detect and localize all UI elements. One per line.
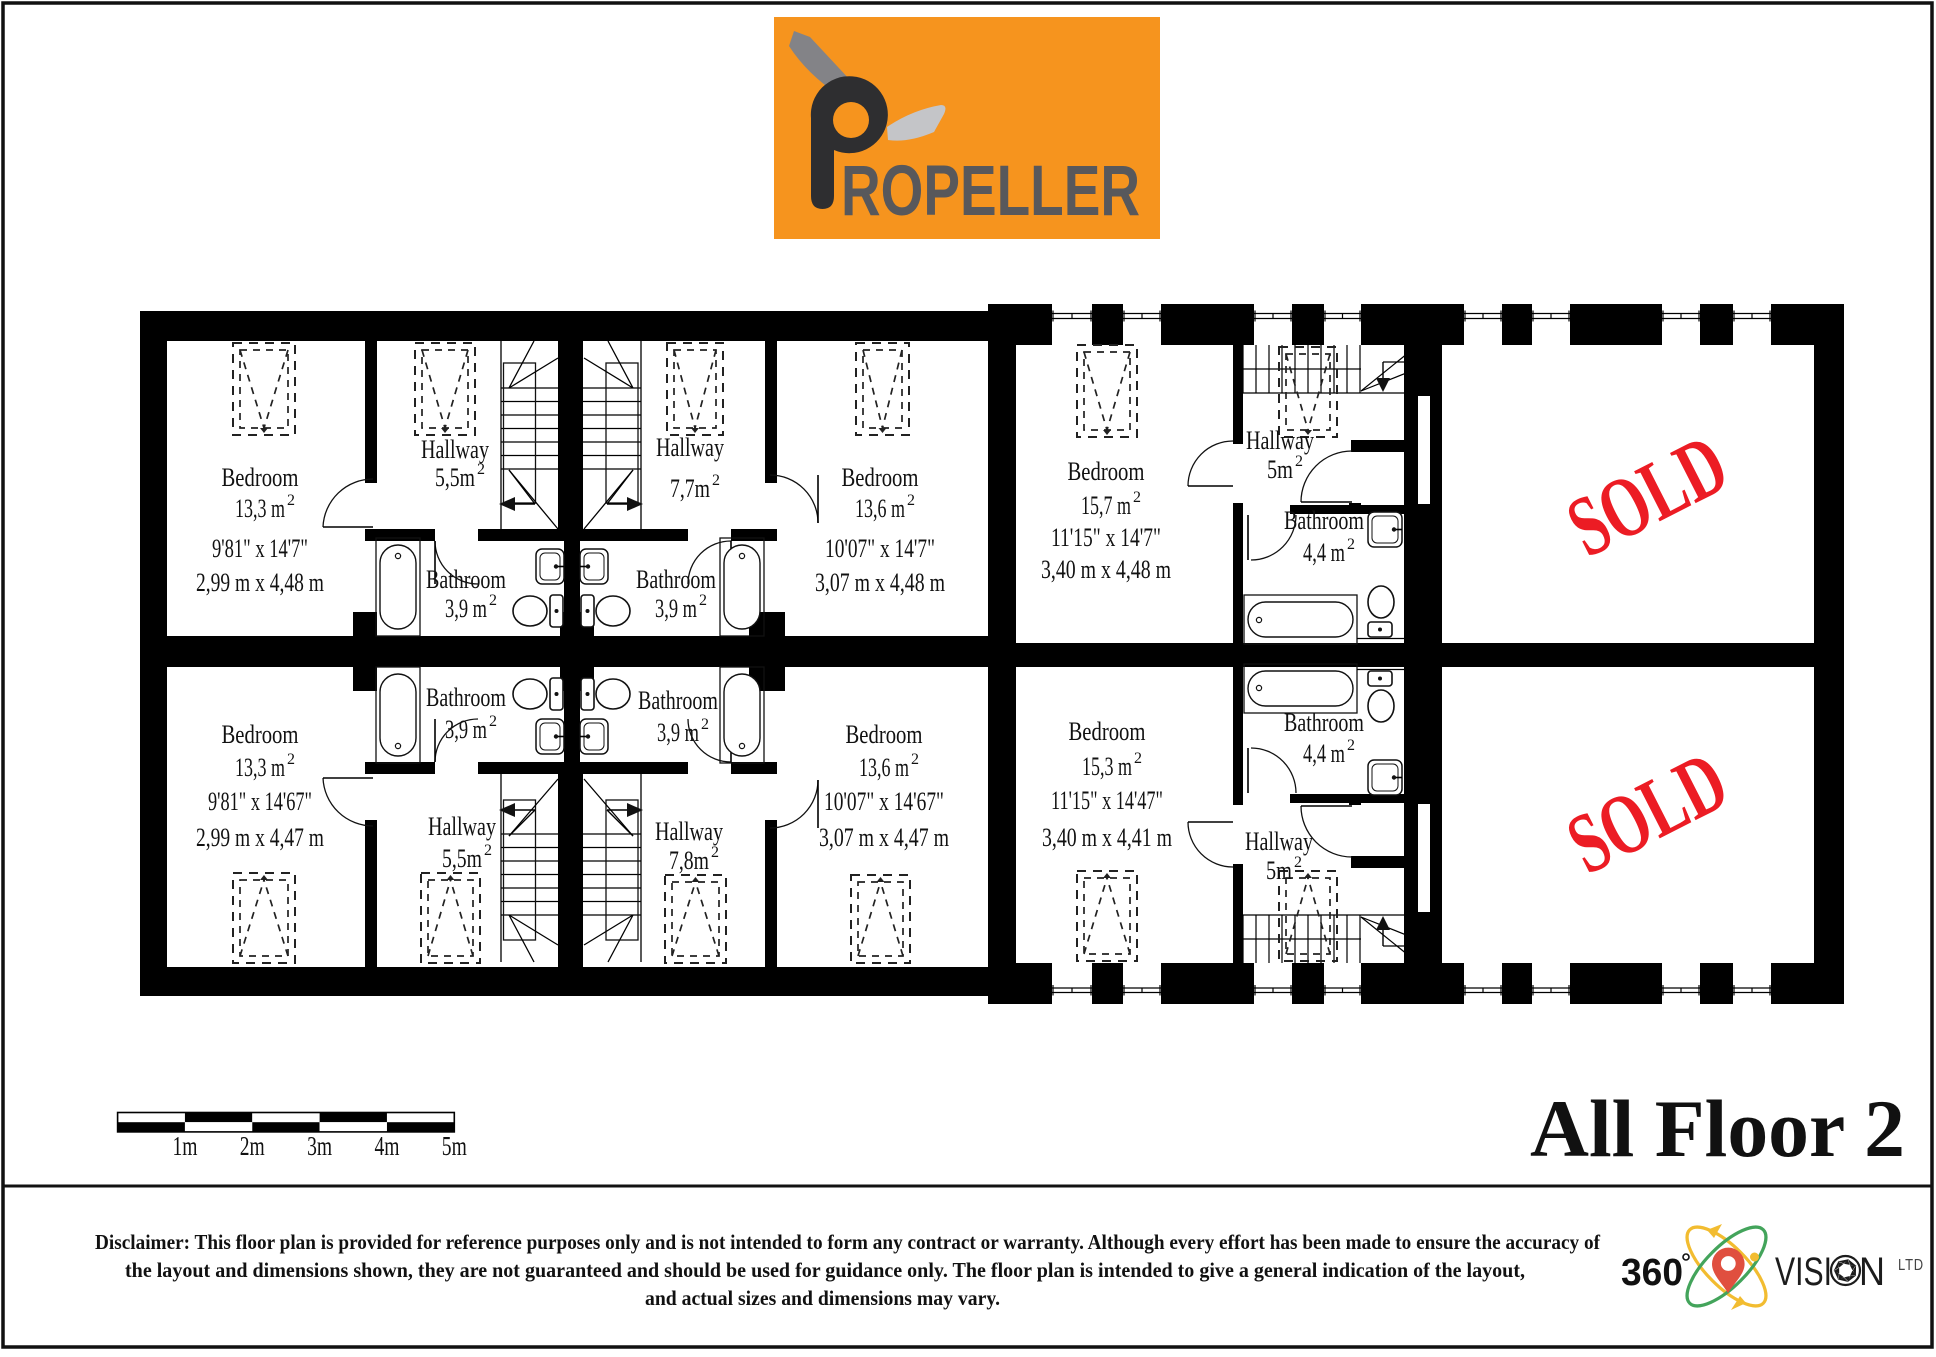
svg-text:2: 2 (477, 461, 485, 478)
svg-text:5,5m: 5,5m (442, 844, 482, 873)
svg-text:3,07 m x 4,47 m: 3,07 m x 4,47 m (819, 823, 949, 852)
svg-text:15,7 m: 15,7 m (1081, 491, 1131, 520)
svg-text:the layout and dimensions show: the layout and dimensions shown, they ar… (125, 1258, 1525, 1282)
svg-text:2: 2 (712, 472, 720, 489)
svg-text:9'81" x 14'7": 9'81" x 14'7" (212, 534, 308, 563)
svg-text:2,99 m x 4,47 m: 2,99 m x 4,47 m (196, 823, 324, 852)
svg-text:Disclaimer: This floor plan is: Disclaimer: This floor plan is provided … (95, 1230, 1601, 1254)
svg-text:1m: 1m (172, 1131, 197, 1161)
svg-text:2: 2 (1295, 453, 1303, 470)
svg-text:7,8m: 7,8m (669, 846, 709, 875)
svg-text:5m: 5m (1267, 455, 1293, 484)
svg-text:Hallway: Hallway (656, 433, 724, 462)
svg-text:3,9 m: 3,9 m (655, 594, 697, 623)
svg-text:13,3 m: 13,3 m (235, 753, 285, 782)
svg-text:5m: 5m (442, 1131, 467, 1161)
svg-text:Bedroom: Bedroom (1069, 717, 1146, 746)
svg-text:Hallway: Hallway (1246, 426, 1314, 455)
svg-text:2: 2 (287, 751, 295, 768)
svg-text:3,9 m: 3,9 m (657, 718, 699, 747)
svg-text:Bedroom: Bedroom (222, 463, 299, 492)
svg-text:2: 2 (711, 844, 719, 861)
svg-text:2: 2 (1347, 536, 1355, 553)
svg-text:3,40 m x 4,48 m: 3,40 m x 4,48 m (1041, 555, 1171, 584)
svg-text:Hallway: Hallway (1245, 827, 1313, 856)
svg-text:10'07" x 14'7": 10'07" x 14'7" (825, 534, 935, 563)
svg-text:2: 2 (1294, 854, 1302, 871)
svg-text:2: 2 (489, 713, 497, 730)
svg-text:N: N (1859, 1250, 1885, 1294)
svg-text:All Floor 2: All Floor 2 (1530, 1083, 1905, 1174)
svg-text:Bedroom: Bedroom (1068, 457, 1145, 486)
svg-text:3,9 m: 3,9 m (445, 715, 487, 744)
svg-text:15,3 m: 15,3 m (1082, 752, 1132, 781)
svg-text:10'07" x 14'67": 10'07" x 14'67" (824, 787, 944, 816)
svg-text:3,9 m: 3,9 m (445, 594, 487, 623)
svg-text:Hallway: Hallway (428, 812, 496, 841)
svg-text:2: 2 (701, 716, 709, 733)
svg-text:Bathroom: Bathroom (1284, 708, 1364, 737)
svg-text:2: 2 (911, 751, 919, 768)
svg-text:2m: 2m (240, 1131, 265, 1161)
svg-text:LTD: LTD (1898, 1257, 1924, 1274)
svg-text:Bathroom: Bathroom (636, 565, 716, 594)
svg-text:360: 360 (1621, 1252, 1683, 1294)
svg-text:11'15" x 14'7": 11'15" x 14'7" (1051, 523, 1161, 552)
svg-text:3,07 m x 4,48 m: 3,07 m x 4,48 m (815, 568, 945, 597)
svg-text:9'81" x 14'67": 9'81" x 14'67" (208, 787, 312, 816)
svg-text:Bathroom: Bathroom (1284, 506, 1364, 535)
svg-text:Bathroom: Bathroom (426, 565, 506, 594)
svg-text:3m: 3m (307, 1131, 332, 1161)
svg-text:Bedroom: Bedroom (222, 720, 299, 749)
svg-text:13,3 m: 13,3 m (235, 494, 285, 523)
svg-text:Bedroom: Bedroom (846, 720, 923, 749)
svg-text:Bedroom: Bedroom (842, 463, 919, 492)
svg-text:2: 2 (699, 592, 707, 609)
svg-text:13,6 m: 13,6 m (859, 753, 909, 782)
svg-text:Bathroom: Bathroom (426, 683, 506, 712)
svg-text:3,40 m x 4,41 m: 3,40 m x 4,41 m (1042, 823, 1172, 852)
svg-text:2: 2 (489, 592, 497, 609)
svg-text:2: 2 (1134, 750, 1142, 767)
svg-text:5m: 5m (1266, 856, 1292, 885)
svg-text:2: 2 (484, 842, 492, 859)
svg-text:13,6 m: 13,6 m (855, 494, 905, 523)
svg-text:ROPELLER: ROPELLER (841, 152, 1140, 231)
svg-text:2: 2 (287, 492, 295, 509)
svg-text:2: 2 (907, 492, 915, 509)
svg-text:4,4 m: 4,4 m (1303, 538, 1345, 567)
svg-text:2: 2 (1133, 489, 1141, 506)
svg-text:and actual sizes and dimension: and actual sizes and dimensions may vary… (645, 1286, 1000, 1310)
svg-text:2: 2 (1347, 737, 1355, 754)
svg-text:4,4 m: 4,4 m (1303, 739, 1345, 768)
svg-text:Bathroom: Bathroom (638, 686, 718, 715)
svg-text:4m: 4m (374, 1131, 399, 1161)
svg-text:11'15" x 14'47": 11'15" x 14'47" (1051, 786, 1163, 815)
svg-text:VISI: VISI (1775, 1250, 1832, 1294)
svg-text:5,5m: 5,5m (435, 463, 475, 492)
svg-text:2,99 m x 4,48 m: 2,99 m x 4,48 m (196, 568, 324, 597)
svg-text:Hallway: Hallway (421, 435, 489, 464)
svg-text:7,7m: 7,7m (670, 474, 710, 503)
svg-text:Hallway: Hallway (655, 817, 723, 846)
